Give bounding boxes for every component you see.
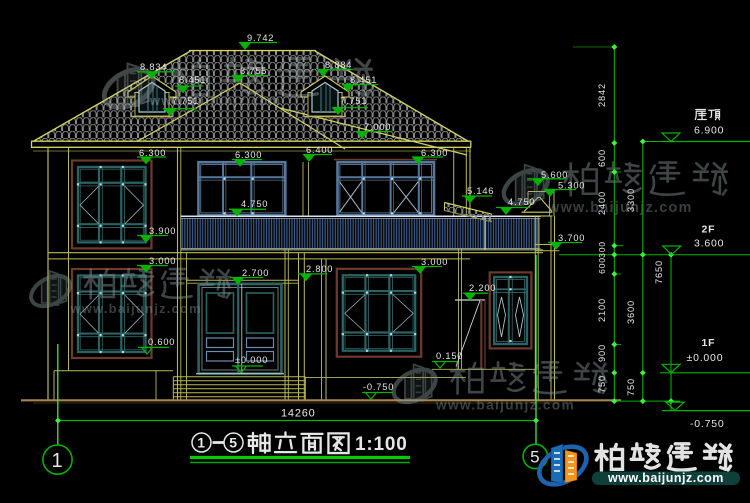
svg-text:5.146: 5.146 bbox=[467, 186, 494, 196]
svg-text:www.baijunjz.com: www.baijunjz.com bbox=[607, 471, 724, 485]
svg-text:±0.000: ±0.000 bbox=[235, 355, 268, 365]
svg-text:8.884: 8.884 bbox=[325, 60, 352, 70]
svg-text:2.200: 2.200 bbox=[469, 283, 496, 293]
svg-text:8.834: 8.834 bbox=[140, 62, 167, 72]
svg-text:2F: 2F bbox=[702, 224, 716, 236]
svg-text:1:100: 1:100 bbox=[355, 434, 408, 455]
svg-text:900: 900 bbox=[597, 344, 607, 362]
svg-text:1: 1 bbox=[197, 435, 206, 451]
svg-text:4.750: 4.750 bbox=[241, 199, 268, 209]
svg-text:3.600: 3.600 bbox=[694, 238, 724, 250]
svg-text:www.baijunjz.com: www.baijunjz.com bbox=[547, 200, 692, 216]
svg-text:1: 1 bbox=[52, 450, 64, 472]
svg-text:6.300: 6.300 bbox=[235, 150, 262, 160]
svg-text:5.600: 5.600 bbox=[541, 170, 568, 180]
svg-text:2400: 2400 bbox=[597, 191, 607, 215]
svg-text:-0.750: -0.750 bbox=[363, 382, 394, 392]
svg-text:5.300: 5.300 bbox=[558, 181, 585, 191]
svg-text:3300: 3300 bbox=[626, 188, 636, 212]
svg-text:5: 5 bbox=[229, 435, 238, 451]
svg-text:750: 750 bbox=[597, 375, 607, 393]
svg-text:3600: 3600 bbox=[626, 300, 636, 324]
svg-text:www.baijunjz.com: www.baijunjz.com bbox=[435, 397, 575, 412]
svg-text:www.baijunjz.com: www.baijunjz.com bbox=[149, 93, 281, 108]
svg-text:2100: 2100 bbox=[597, 298, 607, 322]
svg-text:3.000: 3.000 bbox=[421, 257, 448, 267]
svg-text:7.000: 7.000 bbox=[364, 122, 391, 132]
svg-text:0.600: 0.600 bbox=[148, 337, 175, 347]
svg-text:7.751: 7.751 bbox=[172, 96, 199, 106]
svg-text:2.800: 2.800 bbox=[306, 264, 333, 274]
svg-text:8.451: 8.451 bbox=[179, 75, 206, 85]
svg-text:5: 5 bbox=[530, 448, 540, 467]
svg-text:7650: 7650 bbox=[654, 260, 664, 284]
svg-text:14260: 14260 bbox=[281, 408, 316, 420]
svg-text:750: 750 bbox=[626, 378, 636, 396]
svg-text:6.400: 6.400 bbox=[306, 145, 333, 155]
svg-text:3.900: 3.900 bbox=[149, 226, 176, 236]
svg-text:8.451: 8.451 bbox=[350, 75, 377, 85]
svg-text:0.150: 0.150 bbox=[436, 351, 463, 361]
svg-text:9.742: 9.742 bbox=[247, 33, 274, 43]
svg-text:1F: 1F bbox=[702, 337, 716, 349]
svg-text:3.700: 3.700 bbox=[558, 233, 585, 243]
svg-text:6.300: 6.300 bbox=[139, 148, 166, 158]
svg-text:6.300: 6.300 bbox=[421, 148, 448, 158]
svg-text:-0.750: -0.750 bbox=[690, 418, 725, 430]
svg-text:600: 600 bbox=[597, 257, 607, 274]
svg-text:2842: 2842 bbox=[597, 83, 607, 107]
svg-text:300: 300 bbox=[597, 241, 607, 258]
svg-text:www.baijunjz.com: www.baijunjz.com bbox=[70, 301, 202, 316]
svg-text:6.900: 6.900 bbox=[694, 125, 724, 137]
svg-text:3.000: 3.000 bbox=[149, 256, 176, 266]
svg-text:±0.000: ±0.000 bbox=[687, 352, 724, 364]
svg-text:7.751: 7.751 bbox=[340, 96, 367, 106]
svg-text:2.700: 2.700 bbox=[242, 268, 269, 278]
svg-text:8.755: 8.755 bbox=[240, 66, 267, 76]
svg-text:600: 600 bbox=[597, 149, 607, 167]
svg-text:4.750: 4.750 bbox=[508, 197, 535, 207]
